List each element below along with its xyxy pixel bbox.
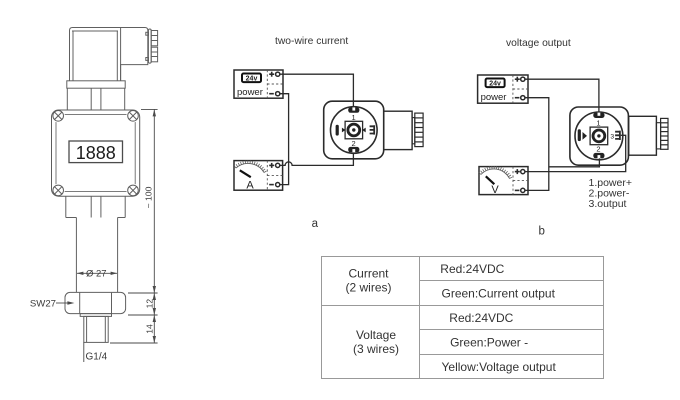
svg-text:(2 wires): (2 wires) (345, 281, 391, 295)
svg-text:14: 14 (145, 324, 155, 334)
svg-text:Voltage: Voltage (356, 328, 396, 342)
svg-text:Current: Current (348, 267, 389, 281)
svg-text:voltage output: voltage output (506, 38, 571, 49)
svg-text:power: power (237, 87, 263, 98)
svg-text:A: A (246, 179, 254, 191)
svg-text:b: b (539, 226, 545, 238)
svg-text:1888: 1888 (76, 143, 116, 163)
svg-text:24v: 24v (246, 76, 258, 83)
svg-text:12: 12 (145, 299, 155, 309)
svg-text:V: V (491, 184, 499, 196)
svg-text:2: 2 (352, 139, 356, 148)
svg-text:a: a (312, 218, 319, 230)
svg-text:SW27: SW27 (30, 299, 56, 310)
svg-text:Green:Power -: Green:Power - (450, 335, 528, 349)
svg-text:Green:Current output: Green:Current output (442, 287, 556, 301)
svg-text:power: power (481, 92, 507, 103)
svg-text:two-wire current: two-wire current (275, 36, 348, 47)
svg-text:3.output: 3.output (589, 198, 627, 210)
svg-text:1: 1 (352, 113, 356, 122)
svg-text:2: 2 (596, 145, 600, 154)
svg-text:~ 100: ~ 100 (143, 186, 153, 208)
svg-text:Red:24VDC: Red:24VDC (449, 311, 513, 325)
svg-text:1: 1 (596, 118, 600, 127)
svg-text:Red:24VDC: Red:24VDC (440, 262, 504, 276)
svg-text:G1/4: G1/4 (86, 352, 108, 363)
svg-text:3: 3 (610, 133, 614, 140)
svg-text:24v: 24v (489, 81, 501, 88)
svg-text:Ø 27: Ø 27 (86, 268, 107, 279)
svg-text:(3 wires): (3 wires) (353, 342, 399, 356)
svg-text:Yellow:Voltage output: Yellow:Voltage output (442, 360, 557, 374)
